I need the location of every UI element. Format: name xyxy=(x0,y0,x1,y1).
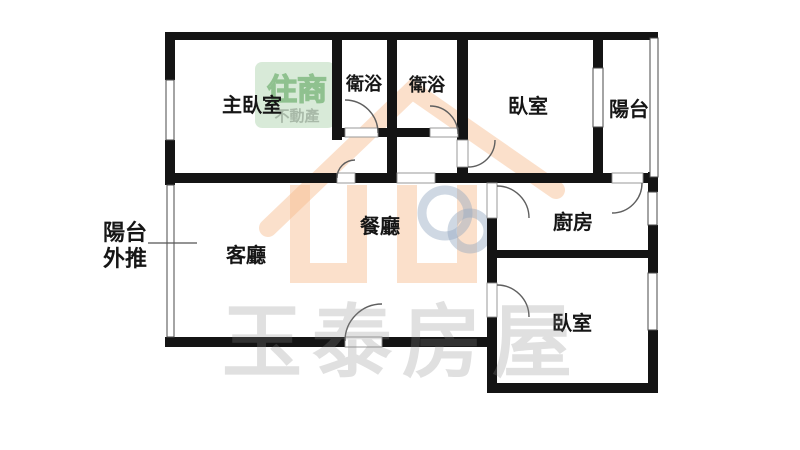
agency-name-watermark: 玉泰房屋 xyxy=(222,298,582,387)
room-label-master-bedroom: 主臥室 xyxy=(222,93,282,117)
door-swing-arc-kitchen xyxy=(497,186,529,218)
room-label-living-room: 客廳 xyxy=(225,243,266,267)
balcony-extension-label-line1: 陽台 xyxy=(103,220,147,245)
wall-bedroom-top-left xyxy=(457,32,468,140)
room-label-bathroom-1: 衛浴 xyxy=(345,73,383,94)
wall-kitchen-left xyxy=(487,218,497,283)
window-master-bedroom xyxy=(166,80,174,140)
room-label-dining-room: 餐廳 xyxy=(360,214,400,238)
window-bedroom-bottom xyxy=(648,273,657,330)
wall-bathroom-bottom xyxy=(332,128,345,137)
floor-plan-image: 住商 不動產 xyxy=(0,0,800,450)
door-swing-arc-balcony xyxy=(612,183,642,213)
floor-plan-svg: 住商 不動產 xyxy=(0,0,800,450)
wall-kitchen-bottom xyxy=(487,250,658,258)
door-opening-hallway xyxy=(397,173,435,183)
room-label-kitchen: 廚房 xyxy=(553,210,593,234)
door-opening-bathroom-1 xyxy=(345,128,378,137)
wall-bathroom-divider xyxy=(387,32,397,183)
room-label-balcony: 陽台 xyxy=(609,97,649,121)
door-opening-bedroom-top xyxy=(457,140,468,167)
wall-bedroom-top-bottom xyxy=(435,173,612,183)
window-living-room-pushed-balcony xyxy=(167,185,174,337)
door-opening-balcony xyxy=(612,173,643,183)
window-kitchen xyxy=(648,192,657,225)
wall-bathroom-bottom xyxy=(458,128,468,137)
room-label-bathroom-2: 衛浴 xyxy=(408,74,446,95)
wall-hall-bottom xyxy=(355,173,397,183)
wall-balcony-divider xyxy=(593,32,603,68)
logo-left-u-shape xyxy=(300,185,357,273)
door-opening-kitchen xyxy=(487,183,497,218)
wall-bathroom-bottom xyxy=(378,128,430,137)
wall-top-exterior xyxy=(165,32,658,40)
balcony-extension-label-line2: 外推 xyxy=(103,246,147,271)
wall-master-bedroom-right xyxy=(332,32,342,140)
window-bedroom-top xyxy=(593,68,603,127)
room-label-bedroom-top: 臥室 xyxy=(508,94,548,118)
wall-right-exterior xyxy=(648,225,658,273)
window-balcony-rail xyxy=(650,38,658,177)
door-opening-bathroom-2 xyxy=(430,128,458,137)
door-opening-master-bedroom xyxy=(337,173,355,183)
wall-left-exterior xyxy=(165,32,175,80)
wall-master-bedroom-bottom xyxy=(165,173,337,183)
